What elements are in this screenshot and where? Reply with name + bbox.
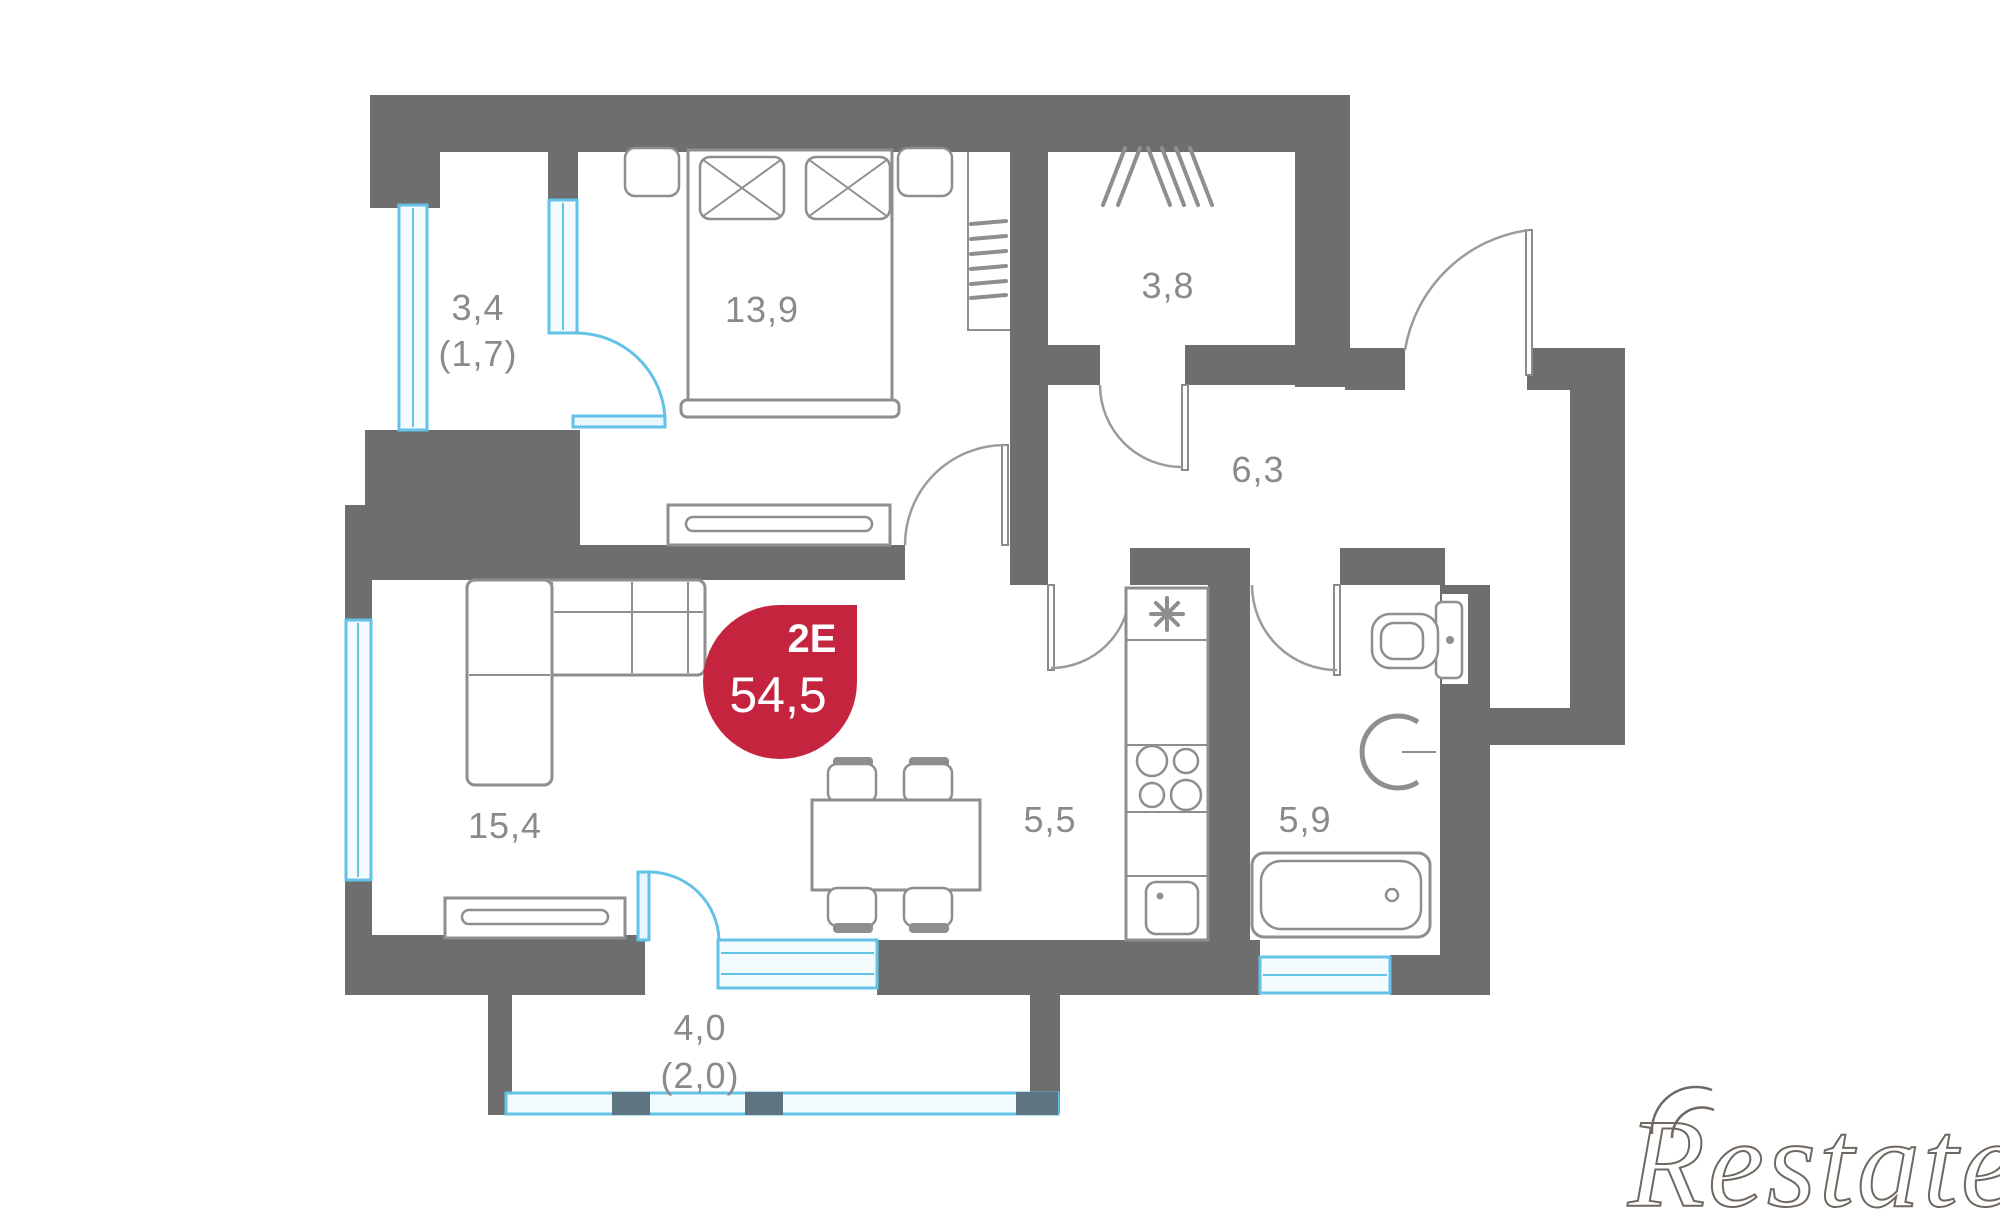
- radiator-living-icon: [445, 898, 625, 938]
- chair-icon: [828, 888, 876, 926]
- dining-table-icon: [812, 757, 980, 933]
- kitchen-unit-icon: [1126, 588, 1208, 940]
- wall-kitchen-bath: [1208, 585, 1250, 955]
- vent-icon: [1151, 598, 1183, 630]
- wall-bedroom-right: [1010, 150, 1048, 585]
- wall-entry-right: [1527, 348, 1625, 390]
- kitchen-door-arc: [1051, 589, 1130, 668]
- wall-bottom-middle: [877, 940, 1260, 995]
- floor-plan-page: 3,4 (1,7) 13,9 3,8 6,3 15,4 5,5 5,9 4,0 …: [0, 0, 2000, 1223]
- room-label-balcony-left: 3,4: [451, 287, 504, 328]
- room-label-hallway: 6,3: [1231, 449, 1284, 490]
- toilet-icon: [1372, 602, 1462, 678]
- wall-entry-left: [1345, 348, 1405, 390]
- wall-top-left-step: [370, 152, 440, 208]
- wall-balcony-bottom: [365, 430, 580, 545]
- bathroom-door-leaf: [1334, 585, 1340, 675]
- watermark: Restate: [1627, 1087, 2000, 1223]
- radiator-bedroom-icon: [668, 505, 890, 545]
- window-living-bottom: [718, 940, 877, 988]
- entrance-door-leaf: [1526, 230, 1532, 375]
- wall-top: [370, 95, 1350, 152]
- room-label-wardrobe: 3,8: [1141, 265, 1194, 306]
- unit-badge-type: 2E: [788, 617, 837, 661]
- sofa-icon: [467, 580, 705, 785]
- mullion-1: [612, 1092, 650, 1115]
- wardrobe-door-arc: [1100, 385, 1182, 467]
- room-label-kitchen: 5,5: [1023, 799, 1076, 840]
- wall-right-exterior: [1570, 385, 1625, 710]
- wall-wardrobe-bottom-left: [1048, 345, 1100, 385]
- unit-badge: 2E 54,5: [703, 605, 857, 759]
- balcony-door-living-arc: [649, 872, 719, 940]
- mullion-2: [745, 1092, 783, 1115]
- wall-bath-bottom: [1390, 955, 1490, 995]
- bathroom-door-arc: [1252, 585, 1337, 670]
- chair-icon: [828, 764, 876, 802]
- washbasin-icon: [1362, 716, 1436, 788]
- balcony-door-living-leaf: [638, 872, 649, 940]
- room-label-balcony-bottom: 4,0: [673, 1007, 726, 1048]
- bedroom-door-arc: [905, 445, 1005, 545]
- entrance-door-arc: [1405, 230, 1529, 350]
- wall-bottom-left-corner: [345, 935, 645, 995]
- wall-wardrobe-bottom-right: [1185, 345, 1295, 385]
- bathtub-icon: [1252, 853, 1430, 937]
- nightstand-left-icon: [625, 148, 679, 196]
- nightstand-right-icon: [898, 148, 952, 196]
- kitchen-door-leaf: [1048, 585, 1054, 670]
- watermark-text: Restate: [1627, 1095, 2000, 1223]
- wall-hall-bath: [1340, 548, 1445, 585]
- bedroom-door-leaf: [1002, 445, 1008, 545]
- chair-icon: [904, 888, 952, 926]
- balcony-door-bedroom-arc: [576, 333, 665, 422]
- wall-bedroom-living: [345, 545, 905, 580]
- closet-shelves-icon: [968, 152, 1010, 330]
- kitchen-sink-icon: [1146, 882, 1198, 934]
- unit-badge-area: 54,5: [729, 667, 826, 723]
- room-label-bedroom: 13,9: [725, 289, 799, 330]
- wardrobe-door-leaf: [1182, 385, 1188, 470]
- room-sublabel-balcony-bottom: (2,0): [660, 1055, 739, 1096]
- chair-icon: [904, 764, 952, 802]
- balcony-door-bedroom-leaf: [573, 416, 665, 427]
- floor-plan: 3,4 (1,7) 13,9 3,8 6,3 15,4 5,5 5,9 4,0 …: [0, 0, 2000, 1223]
- room-label-living-room: 15,4: [468, 805, 542, 846]
- wardrobe-hatch-icon: [1103, 148, 1212, 205]
- room-label-bathroom: 5,9: [1278, 799, 1331, 840]
- bed-icon: [681, 150, 899, 417]
- room-sublabel-balcony-left: (1,7): [438, 333, 517, 374]
- mullion-3: [1016, 1092, 1058, 1115]
- wall-hall-kitchen: [1130, 548, 1250, 585]
- wall-hall-corner: [1487, 708, 1625, 745]
- wall-entry-block: [1295, 150, 1350, 387]
- wall-balcony-stub: [548, 150, 578, 202]
